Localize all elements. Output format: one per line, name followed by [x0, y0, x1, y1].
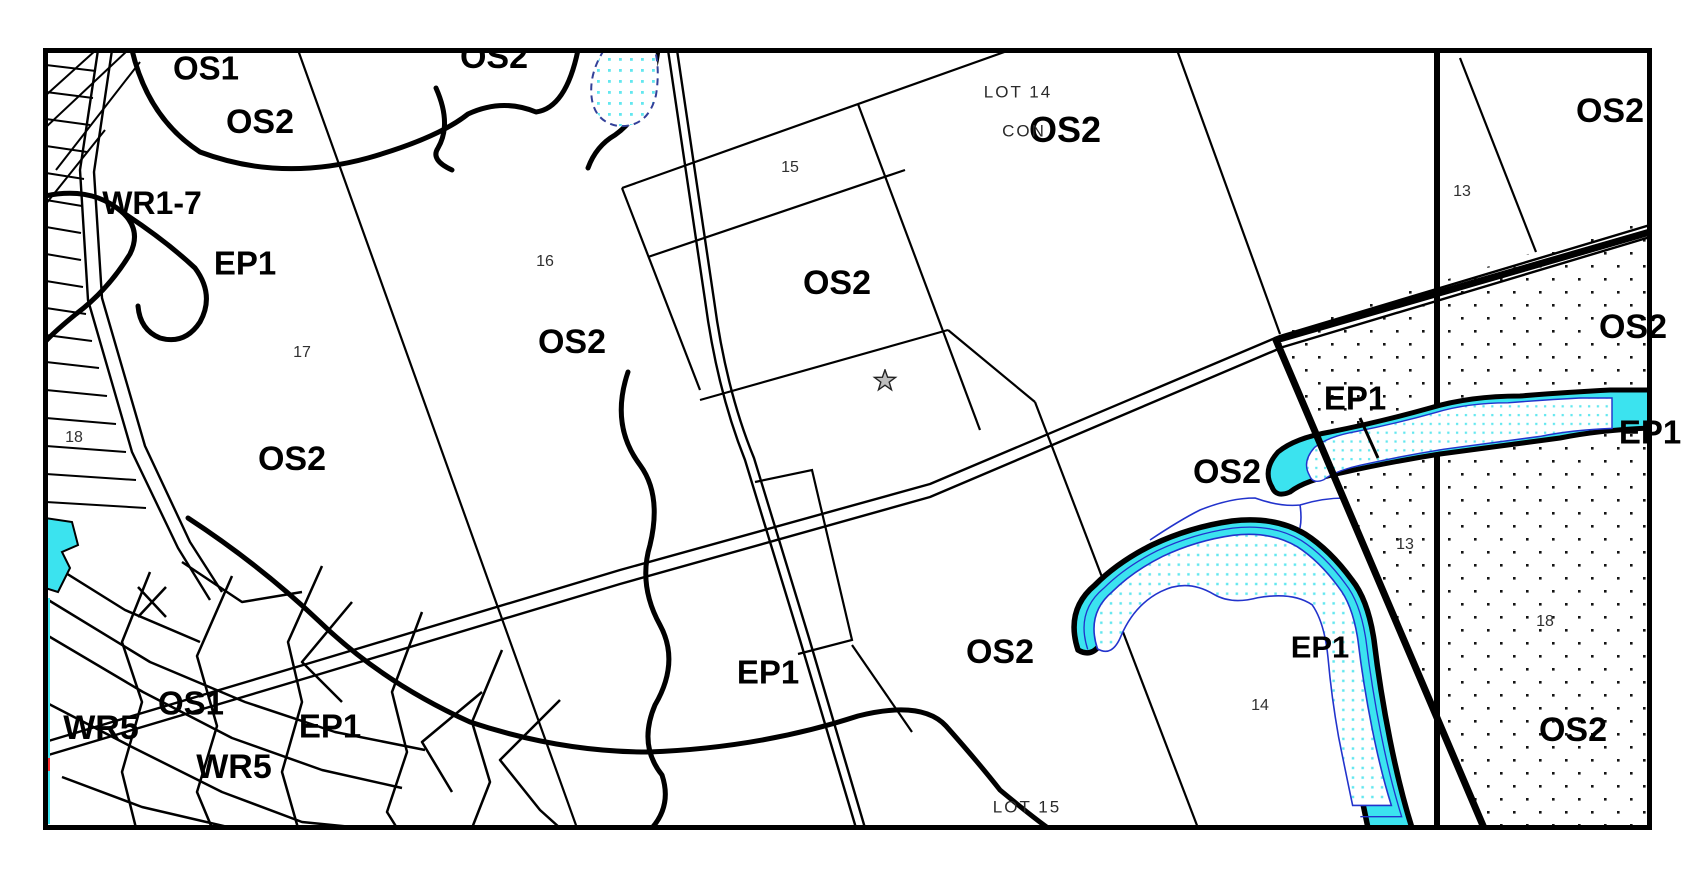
zone-label-os2: OS2 — [460, 50, 528, 74]
zone-label-os2: OS2 — [538, 325, 606, 359]
zone-label-os1: OS1 — [173, 52, 239, 85]
zone-label-ep1: EP1 — [299, 710, 361, 743]
map-labels-layer: OS1OS2OS2WR1-7EP1OS2OS2OS2OS2OS2OS2EP1EP… — [45, 50, 1696, 828]
parcel-number-18: 18 — [65, 430, 83, 446]
parcel-number-18: 18 — [1536, 614, 1554, 630]
lot-text-con: CON — [1002, 123, 1046, 140]
zone-label-os2: OS2 — [226, 105, 294, 139]
zone-label-os2: OS2 — [803, 266, 871, 300]
zone-label-os2: OS2 — [258, 442, 326, 476]
zone-label-wr1-7: WR1-7 — [102, 187, 202, 219]
zone-label-ep1: EP1 — [1291, 632, 1350, 663]
lot-text-lot-15: LOT 15 — [993, 799, 1061, 816]
zone-label-ep1: EP1 — [737, 656, 799, 689]
zone-label-os2: OS2 — [1193, 455, 1261, 489]
survey-star-icon — [872, 369, 898, 393]
zone-label-os2: OS2 — [1539, 713, 1607, 747]
zone-label-ep1: EP1 — [1324, 382, 1386, 415]
zone-label-wr5: WR5 — [196, 750, 272, 784]
parcel-number-17: 17 — [293, 345, 311, 361]
zone-label-os1: OS1 — [158, 687, 224, 720]
parcel-number-14: 14 — [1251, 698, 1269, 714]
zone-label-wr5: WR5 — [63, 711, 139, 745]
zone-label-os2: OS2 — [966, 635, 1034, 669]
zone-label-ep1: EP1 — [214, 247, 276, 280]
parcel-number-16: 16 — [536, 254, 554, 270]
parcel-number-13: 13 — [1396, 537, 1414, 553]
zoning-map-canvas: OS1OS2OS2WR1-7EP1OS2OS2OS2OS2OS2OS2EP1EP… — [0, 0, 1696, 888]
zone-label-os2: OS2 — [1599, 310, 1667, 344]
zone-label-ep1: EP1 — [1619, 416, 1681, 449]
lot-text-lot-14: LOT 14 — [984, 84, 1052, 101]
parcel-number-13: 13 — [1453, 184, 1471, 200]
zone-label-os2: OS2 — [1576, 94, 1644, 128]
parcel-number-15: 15 — [781, 160, 799, 176]
